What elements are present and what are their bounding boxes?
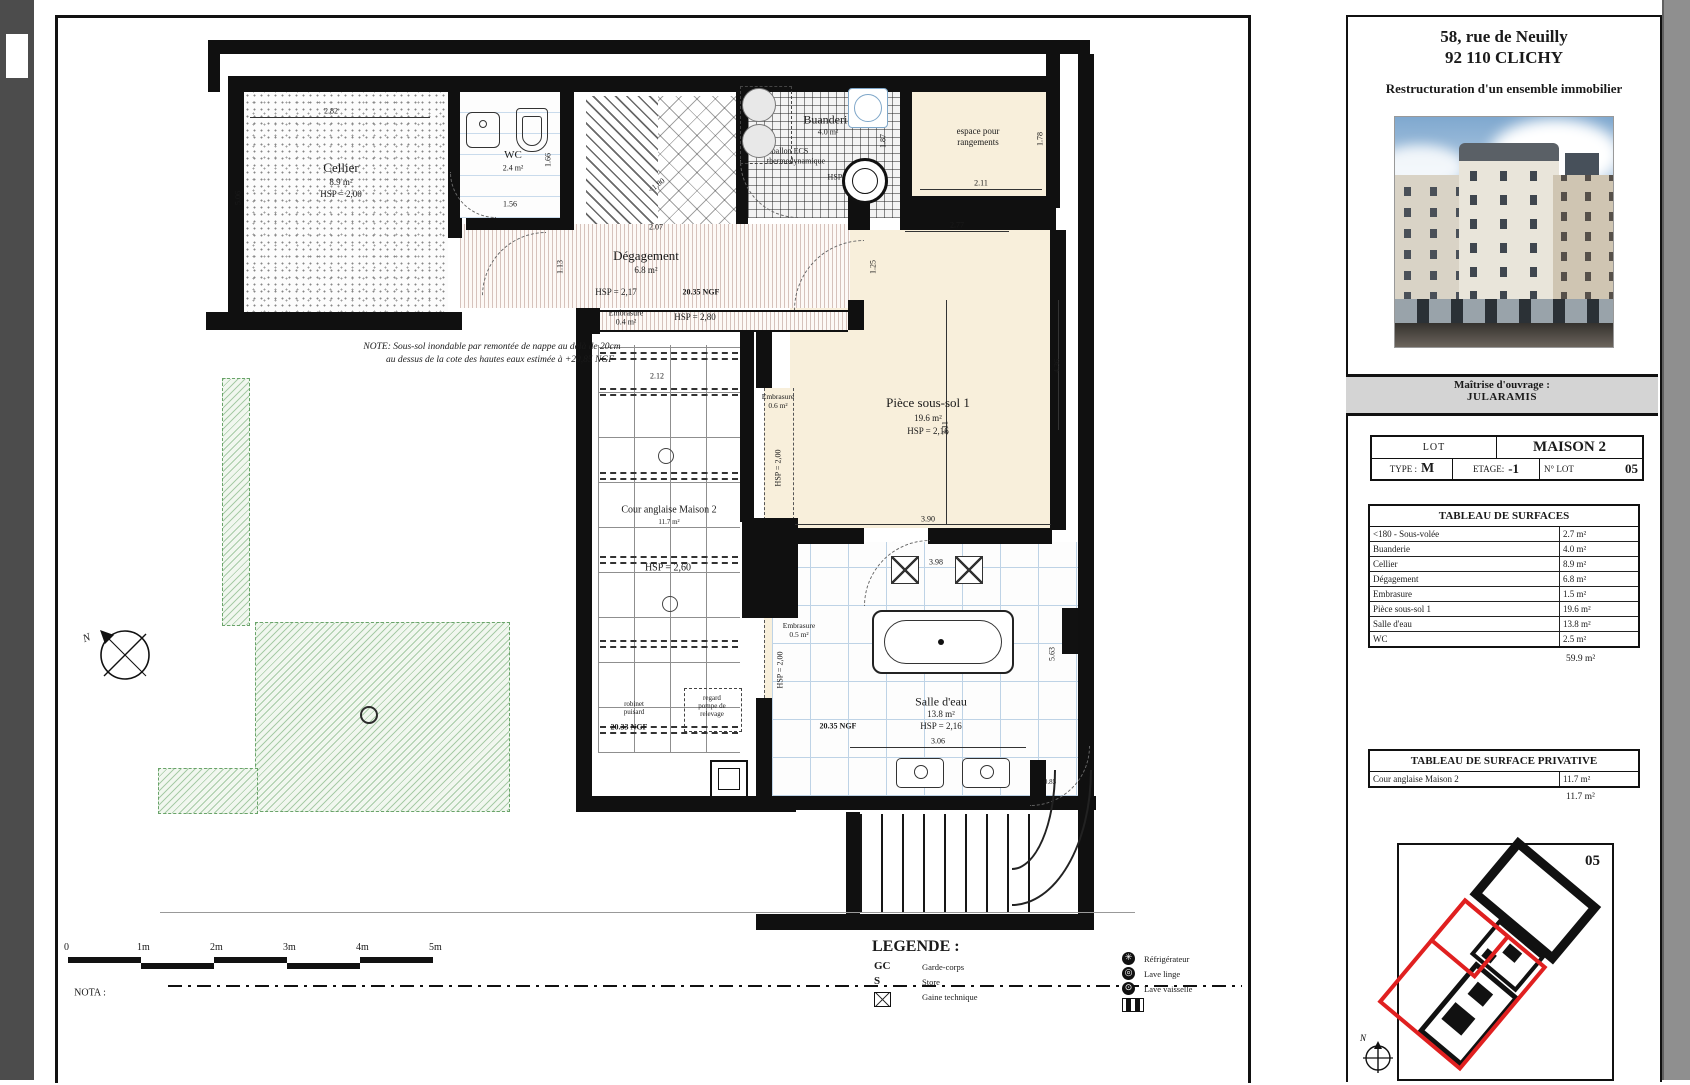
wall-niche-2 bbox=[955, 556, 983, 584]
surface-row: WC2.5 m² bbox=[1369, 632, 1639, 648]
owner-band: Maîtrise d'ouvrage : JULARAMIS bbox=[1346, 374, 1658, 416]
privative-table-title: TABLEAU DE SURFACE PRIVATIVE bbox=[1369, 750, 1639, 772]
embrasure-1-area: 0.6 m² bbox=[768, 402, 787, 410]
room-label-buanderie: Buanderie bbox=[803, 114, 852, 127]
wall-segment bbox=[756, 330, 772, 388]
legend-item-label: Store bbox=[922, 977, 1122, 989]
project-address-line1: 58, rue de Neuilly bbox=[1348, 27, 1660, 47]
dimension-label: 4.36 bbox=[1054, 359, 1063, 373]
room-area-cour: 11.7 m² bbox=[658, 519, 679, 527]
lot-etage: ETAGE: -1 bbox=[1453, 459, 1540, 479]
surface-label: <180 - Sous-volée bbox=[1369, 527, 1560, 542]
photo-storefront bbox=[1395, 299, 1613, 325]
surface-value: 2.5 m² bbox=[1560, 632, 1640, 648]
legend-appliances: ✳Réfrigérateur◎Lave linge⊙Lave vaisselle bbox=[1122, 952, 1262, 1032]
project-photo bbox=[1394, 116, 1614, 348]
wall-segment bbox=[756, 520, 772, 540]
wall-segment bbox=[900, 196, 1056, 230]
dimension-label: 1.25 bbox=[870, 260, 879, 274]
key-plan-north-compass: N bbox=[1356, 1029, 1398, 1075]
scale-segment bbox=[214, 957, 287, 963]
north-compass bbox=[94, 624, 154, 684]
legend-items: GCGarde-corpsSStoreGaine technique bbox=[874, 962, 1134, 1022]
dimension-line bbox=[905, 231, 1009, 232]
dimension-label: 2.77 bbox=[950, 222, 964, 231]
boiler-inner bbox=[852, 168, 878, 194]
wall-segment bbox=[448, 88, 460, 230]
scale-tick-label: 3m bbox=[283, 942, 313, 954]
dimension-label: 1.56 bbox=[503, 201, 517, 210]
towel-radiator bbox=[1062, 608, 1078, 654]
room-label-salle: Salle d'eau bbox=[915, 696, 967, 709]
key-plan-footprint bbox=[1370, 829, 1614, 1085]
dimension-label: 1.66 bbox=[545, 153, 554, 167]
project-address-line2: 92 110 CLICHY bbox=[1348, 48, 1660, 68]
north-label: N bbox=[82, 632, 93, 646]
dimension-line bbox=[250, 117, 430, 118]
wall-segment bbox=[228, 76, 1060, 92]
sous-volee-area bbox=[658, 96, 736, 226]
ecs-tank-circle-1 bbox=[742, 88, 776, 122]
room-area-salle: 13.8 m² bbox=[927, 710, 955, 720]
bathtub-drain bbox=[938, 639, 944, 645]
scale-tick-label: 1m bbox=[137, 942, 167, 954]
nota-label: NOTA : bbox=[74, 989, 106, 1000]
surface-label: Dégagement bbox=[1369, 572, 1560, 587]
svg-text:N: N bbox=[1359, 1033, 1367, 1043]
surface-label: Cellier bbox=[1369, 557, 1560, 572]
surfaces-table-title: TABLEAU DE SURFACES bbox=[1369, 505, 1639, 527]
technical-duct-icon bbox=[1122, 998, 1144, 1012]
wall-segment bbox=[740, 330, 754, 522]
owner-label: Maîtrise d'ouvrage : bbox=[1346, 379, 1658, 391]
surface-value: 1.5 m² bbox=[1560, 587, 1640, 602]
scale-segment bbox=[360, 957, 433, 963]
lot-number: N° LOT 05 bbox=[1540, 459, 1642, 479]
grating-line bbox=[600, 388, 738, 396]
cellier-floor bbox=[244, 92, 448, 312]
room-area-piece: 19.6 m² bbox=[914, 414, 942, 424]
surface-row: Embrasure1.5 m² bbox=[1369, 587, 1639, 602]
photo-building-left bbox=[1395, 175, 1467, 301]
surface-value: 4.0 m² bbox=[1560, 542, 1640, 557]
surface-value: 8.9 m² bbox=[1560, 557, 1640, 572]
wall-segment bbox=[206, 312, 462, 330]
room-label-piece: Pièce sous-sol 1 bbox=[886, 396, 970, 410]
legend-item-label: Gaine technique bbox=[922, 992, 1122, 1004]
wall-segment bbox=[448, 218, 462, 238]
room-hsp-cour: HSP = 2,60 bbox=[645, 564, 691, 575]
surface-row: Salle d'eau13.8 m² bbox=[1369, 617, 1639, 632]
annotation-robinet-2: puisard bbox=[624, 709, 645, 717]
wall-segment bbox=[846, 812, 860, 914]
garden-area bbox=[255, 622, 510, 812]
legend-item-label: Garde-corps bbox=[922, 962, 1122, 974]
surface-row: Cellier8.9 m² bbox=[1369, 557, 1639, 572]
legend-appliance-label: Lave vaisselle bbox=[1144, 984, 1254, 996]
garden-well-circle bbox=[360, 706, 378, 724]
wall-segment bbox=[208, 40, 1090, 54]
room-label-wc: WC bbox=[504, 150, 522, 162]
scale-segment bbox=[141, 963, 214, 969]
dimension-line bbox=[850, 747, 1026, 748]
wall-segment bbox=[208, 40, 220, 92]
surface-label: Salle d'eau bbox=[1369, 617, 1560, 632]
wall-segment bbox=[756, 540, 772, 600]
drawing-sheet: Cellier8.9 m²HSP = 2,00WC2.4 m²Dégagemen… bbox=[0, 0, 1690, 1080]
surface-value: 6.8 m² bbox=[1560, 572, 1640, 587]
dimension-label: 1.13 bbox=[557, 260, 566, 274]
surfaces-total: 59.9 m² bbox=[1566, 654, 1595, 664]
room-label-cellier: Cellier bbox=[323, 161, 358, 175]
scale-segment bbox=[68, 957, 141, 963]
embrasure-2-area: 0.5 m² bbox=[789, 631, 808, 639]
legend-title: LEGENDE : bbox=[872, 938, 960, 956]
scale-tick-label: 2m bbox=[210, 942, 240, 954]
room-area-wc: 2.4 m² bbox=[503, 165, 524, 174]
dishwasher-icon: ⊙ bbox=[1122, 982, 1135, 995]
washbasin-icon bbox=[466, 112, 500, 148]
lot-label: LOT bbox=[1372, 437, 1497, 458]
owner-name: JULARAMIS bbox=[1346, 391, 1658, 403]
toilet-bowl bbox=[522, 116, 542, 146]
room-area-cellier: 8.9 m² bbox=[329, 178, 352, 188]
dimension-label: 3.98 bbox=[929, 559, 943, 568]
surface-value: 2.7 m² bbox=[1560, 527, 1640, 542]
key-plan-lot-number: 05 bbox=[1585, 853, 1600, 870]
dimension-label: 3.90 bbox=[921, 516, 935, 525]
room-label-espace-1: espace pour bbox=[957, 127, 1000, 137]
surface-row: Pièce sous-sol 119.6 m² bbox=[1369, 602, 1639, 617]
wall-segment bbox=[560, 88, 574, 230]
surfaces-table: TABLEAU DE SURFACES <180 - Sous-volée2.7… bbox=[1368, 504, 1640, 648]
legend-key: GC bbox=[874, 960, 904, 974]
stair-hatch-area bbox=[586, 96, 658, 226]
dimension-label: 5.06 bbox=[235, 191, 244, 205]
surface-row: Buanderie4.0 m² bbox=[1369, 542, 1639, 557]
wall-segment bbox=[790, 528, 864, 544]
surface-label: WC bbox=[1369, 632, 1560, 648]
embrasure-1-hsp: HSP = 2,00 bbox=[775, 450, 784, 487]
ecs-tank-circle-2 bbox=[742, 124, 776, 158]
washing-machine-drum bbox=[854, 94, 882, 122]
photo-building-right bbox=[1553, 175, 1613, 301]
scale-tick-label: 4m bbox=[356, 942, 386, 954]
room-area-buanderie: 4.0 m² bbox=[818, 129, 839, 138]
wall-segment bbox=[1046, 54, 1060, 208]
photo-building-center bbox=[1459, 161, 1559, 301]
wall-segment bbox=[928, 528, 1052, 544]
drain-cover-1 bbox=[658, 448, 674, 464]
dimension-label: 2.07 bbox=[649, 224, 663, 233]
wall-segment bbox=[756, 914, 1094, 930]
gaine-technique-icon bbox=[874, 992, 891, 1007]
scale-tick-label: 5m bbox=[429, 942, 459, 954]
dimension-label: 1.87 bbox=[880, 134, 889, 148]
lot-type: TYPE : M bbox=[1372, 459, 1453, 479]
level-ngf-salle: 20.35 NGF bbox=[820, 723, 857, 732]
level-ngf-cour: 20.33 NGF bbox=[611, 724, 648, 733]
dimension-line bbox=[946, 300, 947, 525]
lot-table: LOT MAISON 2 TYPE : M ETAGE: -1 N° LOT 0… bbox=[1370, 435, 1644, 481]
legend-appliance-label: Réfrigérateur bbox=[1144, 954, 1254, 966]
privative-row: Cour anglaise Maison 211.7 m² bbox=[1369, 772, 1639, 788]
dimension-label: 1.78 bbox=[1037, 132, 1046, 146]
key-plan: 05 bbox=[1397, 843, 1614, 1081]
dimension-label: 3.06 bbox=[931, 738, 945, 747]
ground-line bbox=[160, 912, 1135, 913]
grating-line bbox=[600, 640, 738, 648]
room-hsp-salle: HSP = 2,16 bbox=[920, 722, 962, 732]
staircase-treads bbox=[860, 814, 1032, 912]
room-label-degagement: Dégagement bbox=[613, 249, 679, 263]
sink-bowl-1 bbox=[914, 765, 928, 779]
technical-duct-inner bbox=[718, 768, 740, 790]
privative-table: TABLEAU DE SURFACE PRIVATIVE Cour anglai… bbox=[1368, 749, 1640, 788]
lot-name: MAISON 2 bbox=[1497, 437, 1642, 458]
dimension-label: 2.11 bbox=[974, 180, 988, 189]
surface-value: 13.8 m² bbox=[1560, 617, 1640, 632]
dimension-label: 2.82 bbox=[324, 108, 338, 117]
dimension-label: 2.12 bbox=[650, 373, 664, 382]
dimension-label: 5.63 bbox=[1049, 647, 1058, 661]
surface-value: 11.7 m² bbox=[1560, 772, 1640, 788]
wall-segment bbox=[576, 330, 592, 812]
embrasure-2-label: Embrasure bbox=[783, 622, 816, 630]
scale-bar: 01m2m3m4m5m bbox=[68, 942, 448, 974]
surface-label: Pièce sous-sol 1 bbox=[1369, 602, 1560, 617]
surface-label: Embrasure bbox=[1369, 587, 1560, 602]
room-label-cour: Cour anglaise Maison 2 bbox=[621, 506, 716, 517]
legend-key: S bbox=[874, 975, 904, 989]
note-line-2: au dessus de la cote des hautes eaux est… bbox=[386, 355, 614, 365]
surface-value: 19.6 m² bbox=[1560, 602, 1640, 617]
project-subtitle: Restructuration d'un ensemble immobilier bbox=[1348, 81, 1660, 97]
wall-segment bbox=[756, 698, 772, 798]
legend-appliance-label: Lave linge bbox=[1144, 969, 1254, 981]
embrasure-band-hsp: HSP = 2,80 bbox=[674, 313, 716, 323]
wall-segment bbox=[576, 308, 600, 334]
dimension-label: 3.11 bbox=[942, 421, 951, 435]
grating-line bbox=[600, 472, 738, 480]
surface-label: Cour anglaise Maison 2 bbox=[1369, 772, 1560, 788]
room-label-espace-2: rangements bbox=[957, 138, 998, 148]
embrasure-band-area: 0.4 m² bbox=[616, 319, 637, 328]
wall-segment bbox=[900, 80, 912, 210]
sink-bowl-2 bbox=[980, 765, 994, 779]
wall-segment bbox=[466, 218, 574, 230]
room-area-degagement: 6.8 m² bbox=[634, 266, 657, 276]
scale-segment bbox=[287, 963, 360, 969]
garden-strip bbox=[222, 378, 250, 626]
dimension-line bbox=[920, 189, 1042, 190]
wall-niche-1 bbox=[891, 556, 919, 584]
surface-label: Buanderie bbox=[1369, 542, 1560, 557]
room-hsp-cellier: HSP = 2,00 bbox=[320, 190, 362, 200]
embrasure-2-hsp: HSP = 2,00 bbox=[777, 652, 786, 689]
washbasin-drain bbox=[479, 120, 487, 128]
photo-street bbox=[1395, 323, 1613, 347]
surface-row: <180 - Sous-volée2.7 m² bbox=[1369, 527, 1639, 542]
refrigerator-icon: ✳ bbox=[1122, 952, 1135, 965]
drain-cover-2 bbox=[662, 596, 678, 612]
embrasure-1-label: Embrasure bbox=[762, 393, 795, 401]
privative-total: 11.7 m² bbox=[1566, 792, 1595, 802]
grating-line bbox=[600, 352, 738, 360]
note-line-1: NOTE: Sous-sol inondable par remontée de… bbox=[363, 342, 620, 352]
garden-area-left bbox=[158, 768, 258, 814]
level-ngf-degagement: 20.35 NGF bbox=[683, 289, 720, 298]
scale-tick-label: 0 bbox=[64, 942, 94, 954]
room-hsp-degagement: HSP = 2,17 bbox=[595, 288, 637, 298]
surface-row: Dégagement6.8 m² bbox=[1369, 572, 1639, 587]
sump-pump-box bbox=[684, 688, 742, 732]
title-block: 58, rue de Neuilly 92 110 CLICHY Restruc… bbox=[1346, 15, 1662, 1082]
washing-machine-icon: ◎ bbox=[1122, 967, 1135, 980]
